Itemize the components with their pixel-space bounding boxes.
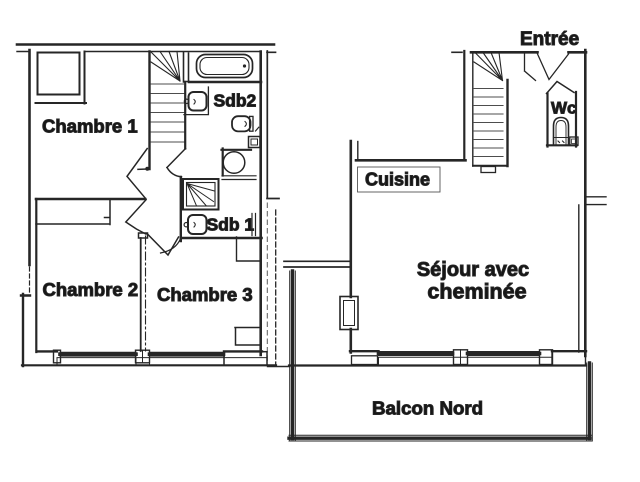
svg-text:Balcon Nord: Balcon Nord [372, 398, 483, 419]
svg-text:Sdb 1: Sdb 1 [207, 215, 255, 235]
svg-text:Chambre 1: Chambre 1 [42, 116, 138, 137]
svg-text:Wc: Wc [551, 99, 577, 118]
svg-text:Entrée: Entrée [520, 29, 579, 50]
svg-text:Chambre 3: Chambre 3 [157, 284, 253, 305]
svg-text:Cuisine: Cuisine [365, 170, 430, 190]
svg-text:Chambre 2: Chambre 2 [43, 279, 139, 300]
svg-text:Sdb2: Sdb2 [214, 91, 257, 111]
svg-text:cheminée: cheminée [427, 280, 526, 304]
svg-text:Séjour avec: Séjour avec [417, 259, 529, 281]
